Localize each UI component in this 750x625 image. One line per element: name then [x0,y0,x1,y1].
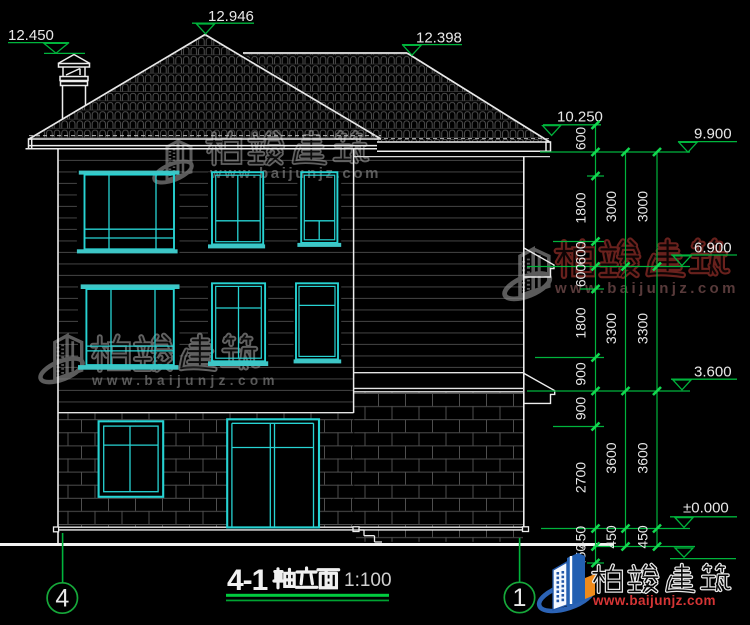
svg-text:1:100: 1:100 [344,570,392,591]
svg-text:1800: 1800 [573,192,589,223]
svg-text:600: 600 [573,264,589,288]
svg-text:900: 900 [573,362,589,386]
svg-text:±0.000: ±0.000 [683,499,729,516]
svg-text:www.baijunjz.com: www.baijunjz.com [209,165,381,182]
svg-text:4: 4 [55,585,69,613]
svg-text:3000: 3000 [603,191,619,222]
svg-text:6.900: 6.900 [694,239,732,256]
svg-text:www.baijunjz.com: www.baijunjz.com [91,373,279,388]
svg-text:3600: 3600 [603,442,619,473]
svg-text:3.600: 3.600 [694,363,732,380]
svg-text:3300: 3300 [603,313,619,344]
svg-text:12.450: 12.450 [8,27,54,44]
svg-text:12.946: 12.946 [208,8,254,25]
svg-text:3000: 3000 [635,191,651,222]
svg-text:3600: 3600 [635,442,651,473]
svg-text:www.baijunjz.com: www.baijunjz.com [592,593,716,608]
svg-text:1: 1 [513,584,527,612]
svg-text:600: 600 [573,127,589,151]
svg-text:2700: 2700 [573,462,589,493]
svg-text:600: 600 [573,241,589,265]
svg-text:3300: 3300 [635,313,651,344]
svg-text:900: 900 [573,397,589,421]
svg-text:450: 450 [635,525,651,549]
svg-text:450: 450 [603,525,619,549]
svg-text:9.900: 9.900 [694,125,732,142]
svg-text:1800: 1800 [573,307,589,338]
svg-text:4-1: 4-1 [227,564,268,597]
